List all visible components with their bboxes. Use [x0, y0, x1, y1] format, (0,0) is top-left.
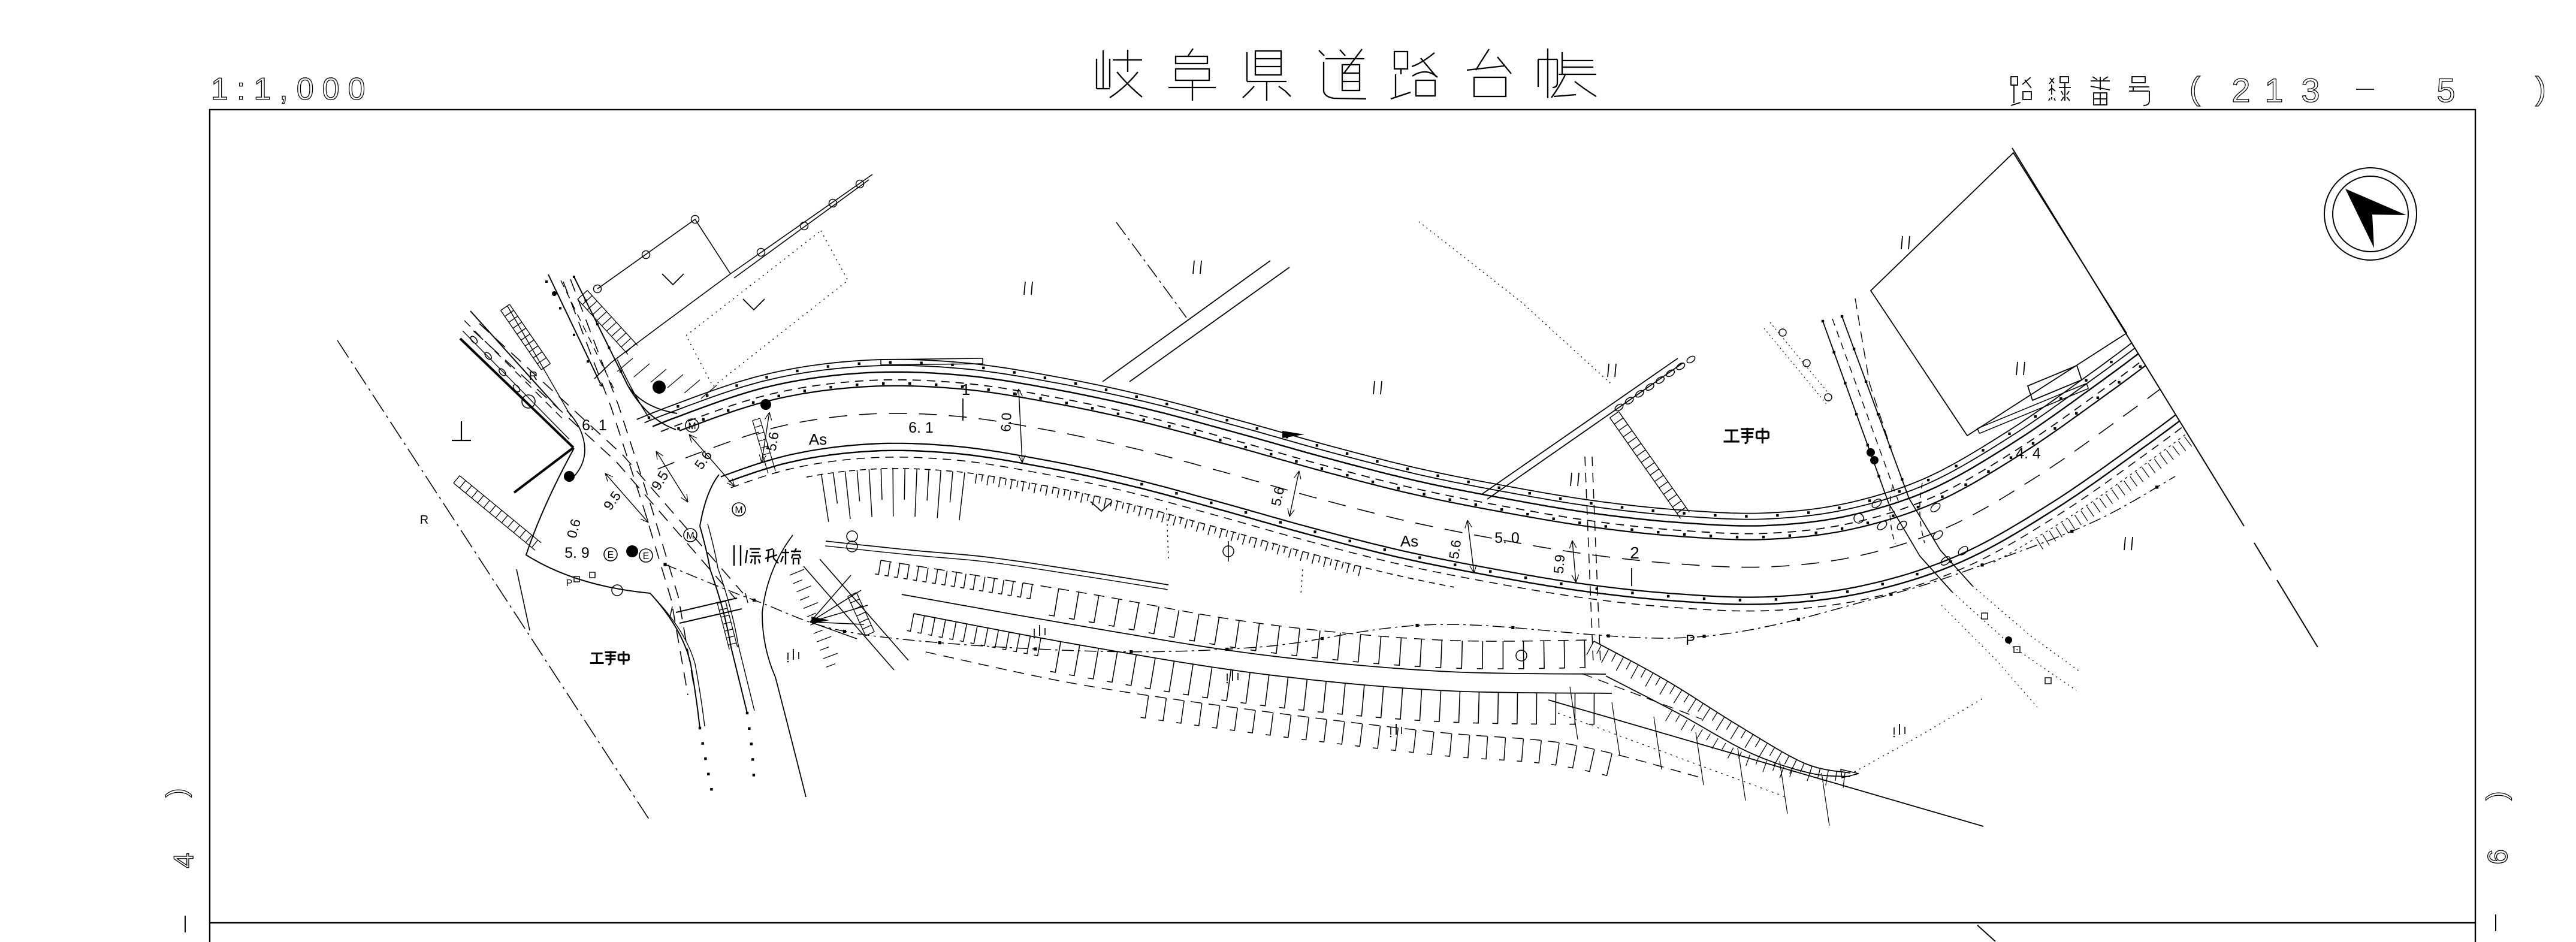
svg-text:5.6: 5.6: [1446, 539, 1464, 560]
svg-text:4: 4: [168, 853, 199, 868]
svg-text:R: R: [529, 370, 537, 383]
svg-text:1: 1: [962, 381, 970, 398]
svg-text:5. 9: 5. 9: [564, 545, 590, 561]
svg-text:M: M: [686, 531, 694, 541]
svg-text:P: P: [1686, 632, 1695, 648]
svg-text:6. 1: 6. 1: [582, 417, 607, 434]
svg-text:(: (: [2190, 71, 2200, 107]
svg-text:1: 1: [2264, 71, 2283, 109]
svg-text:): ): [2535, 71, 2546, 107]
svg-text:6: 6: [2482, 849, 2513, 865]
svg-text:E: E: [643, 551, 650, 561]
svg-text:5.6: 5.6: [763, 431, 782, 452]
svg-text:5. 0: 5. 0: [1494, 530, 1520, 547]
svg-text:R: R: [420, 514, 428, 527]
svg-text:2: 2: [2231, 71, 2250, 109]
svg-text:5: 5: [2436, 71, 2455, 109]
svg-text:2: 2: [1630, 544, 1639, 562]
svg-text:M: M: [688, 421, 696, 431]
svg-text:As: As: [1400, 532, 1418, 550]
svg-text:1:1,000: 1:1,000: [211, 72, 374, 107]
svg-text:5.9: 5.9: [1551, 554, 1568, 574]
svg-text:): ): [161, 788, 192, 797]
svg-text:6.0: 6.0: [998, 412, 1014, 432]
svg-text:3: 3: [2301, 71, 2320, 109]
svg-text:E: E: [608, 550, 614, 560]
svg-text:6. 1: 6. 1: [908, 419, 934, 436]
svg-text:As: As: [809, 430, 827, 448]
svg-text:4. 4: 4. 4: [2016, 445, 2041, 462]
svg-text:M: M: [735, 505, 742, 515]
svg-text:): ): [2481, 791, 2512, 800]
svg-text:P: P: [566, 578, 573, 588]
